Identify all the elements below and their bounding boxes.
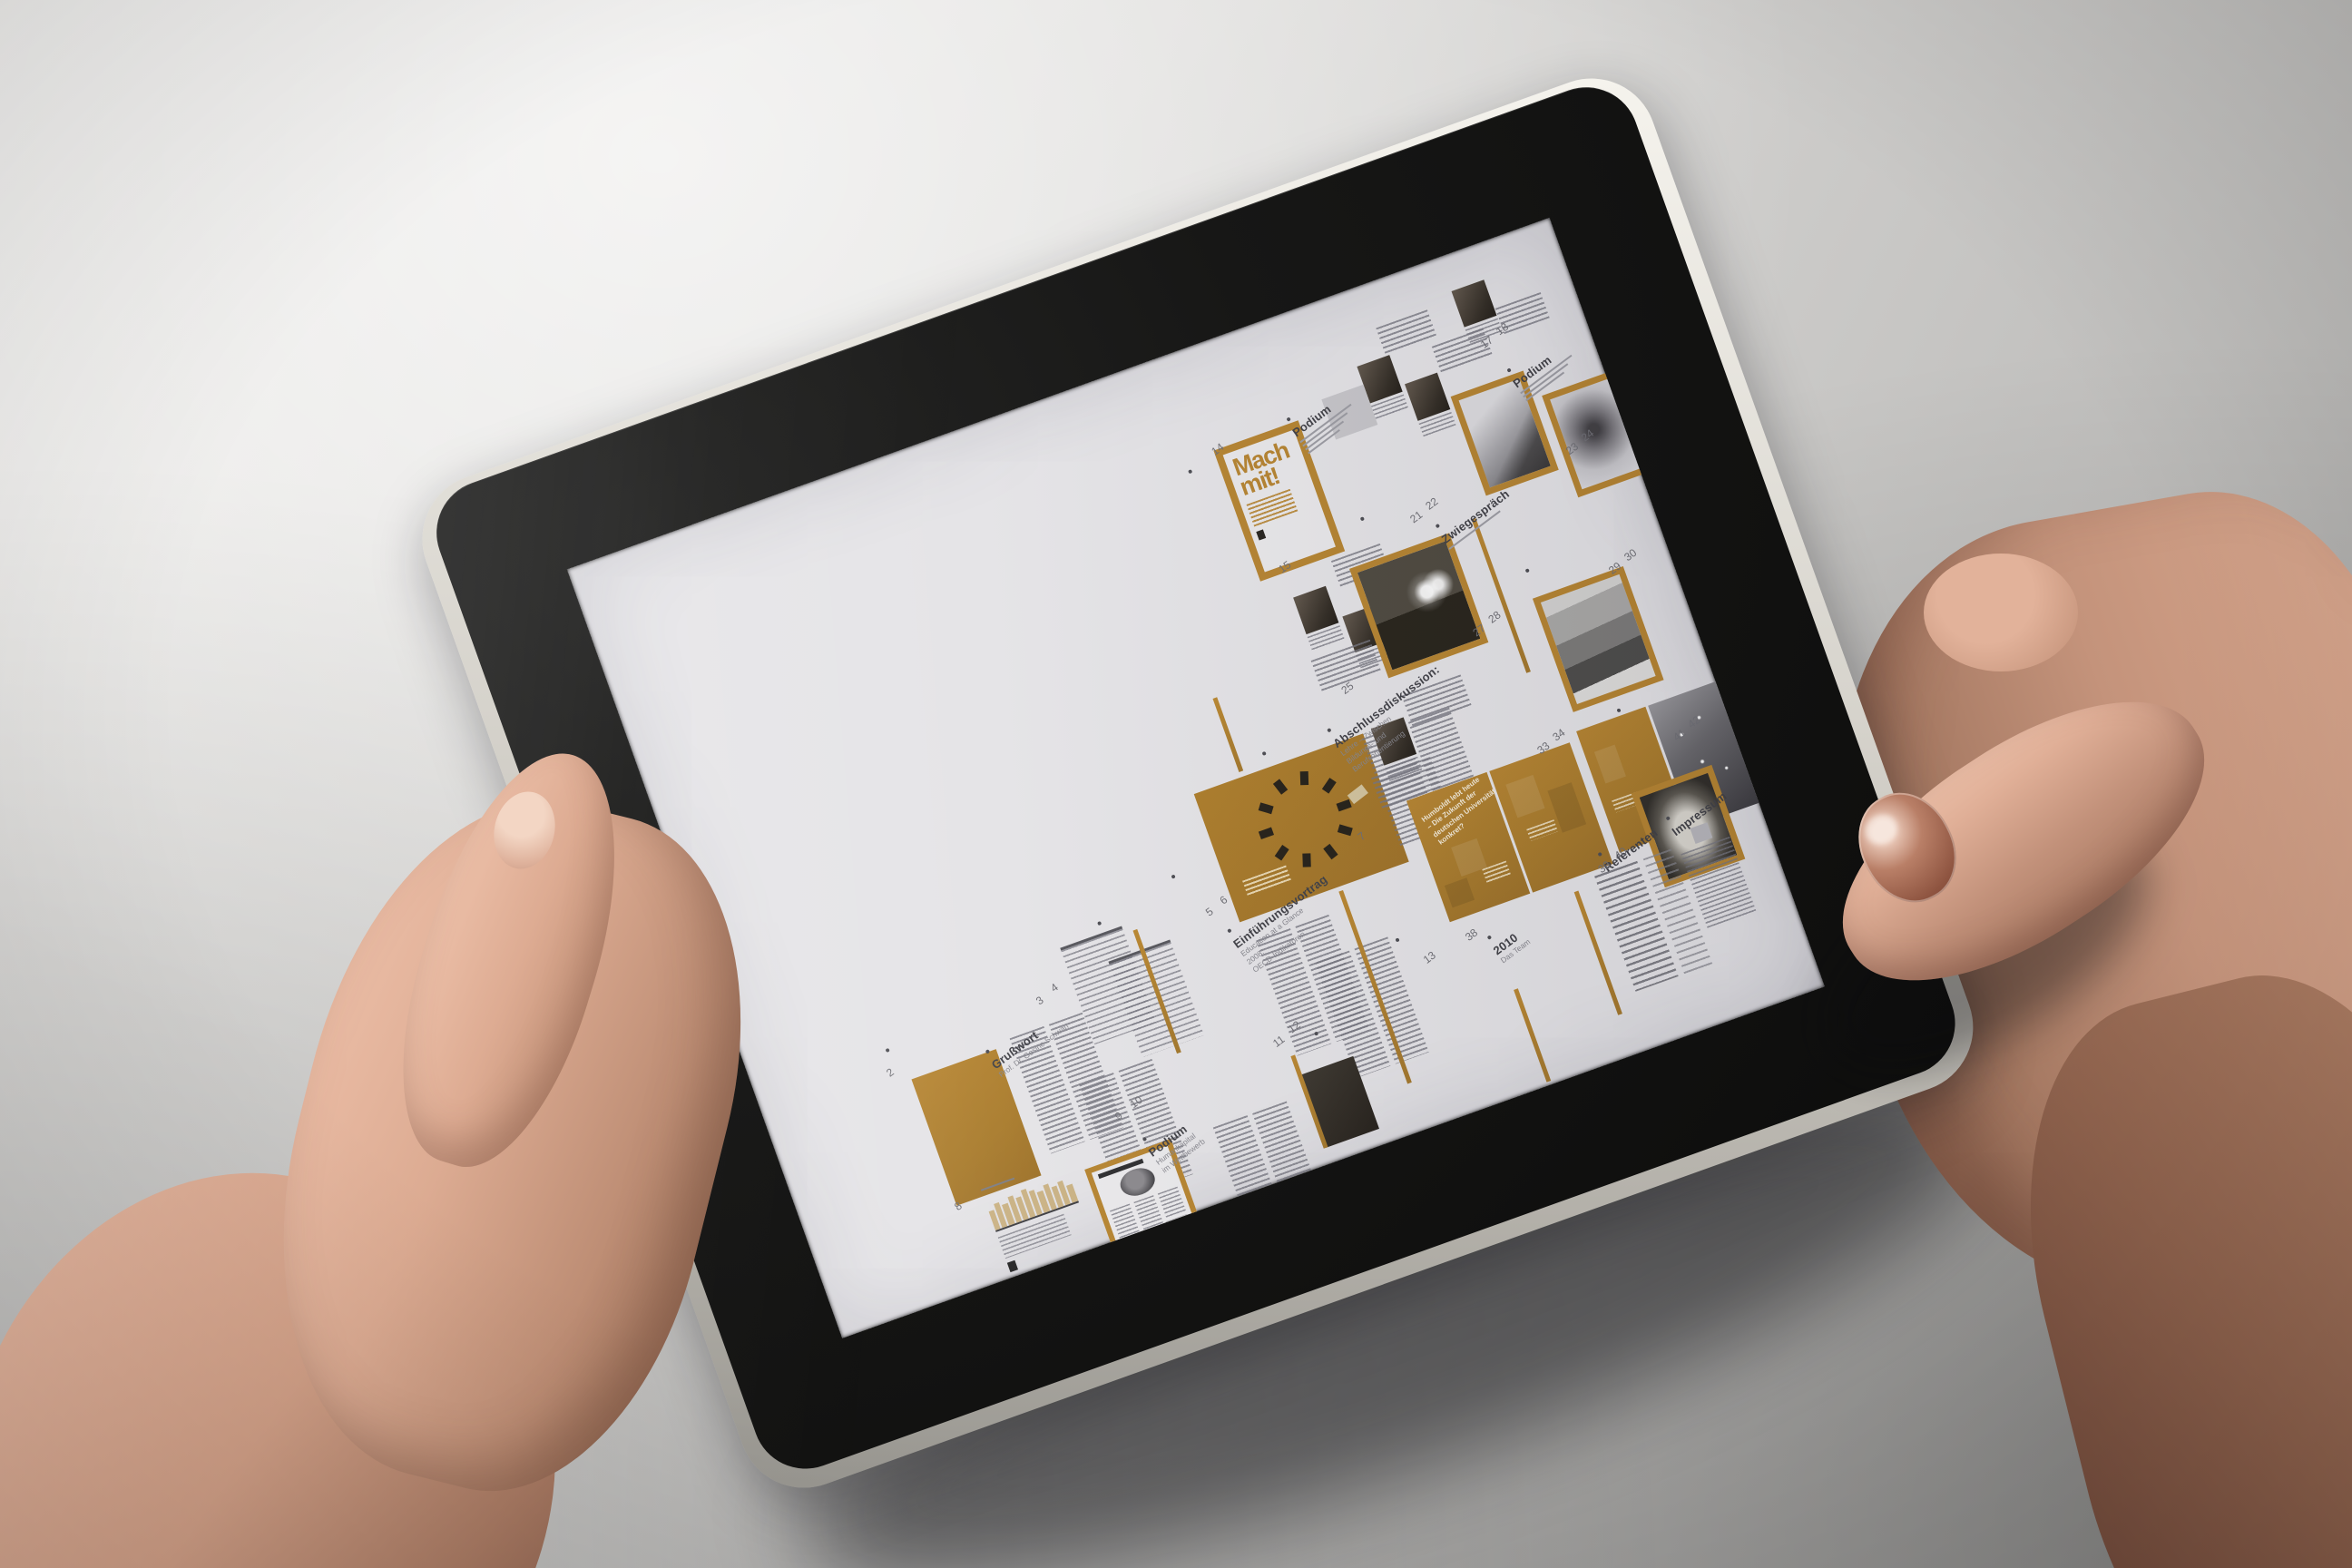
- ochre-rule-4: [1471, 518, 1530, 673]
- heading-team: 2010Das Team: [1491, 926, 1533, 965]
- page-number-6: 6: [1218, 893, 1230, 906]
- auditorium-photo-page: [1533, 566, 1664, 712]
- right-hand-knuckle: [1924, 554, 2078, 671]
- page-number-4: 4: [1048, 980, 1061, 994]
- desk-photo-page: [1451, 371, 1559, 495]
- asterisk-dot-4: [1262, 751, 1267, 756]
- caption-lines-15a: [1377, 310, 1437, 357]
- podium-text-bottom: [1213, 1102, 1313, 1204]
- portrait-15b: [1405, 372, 1457, 439]
- toc-page-2: [1109, 939, 1204, 1057]
- page-number-21: 21: [1407, 508, 1425, 525]
- newspaper-page: [1084, 1138, 1212, 1284]
- page-number-34: 34: [1551, 726, 1568, 743]
- asterisk-dot-8: [1396, 937, 1400, 942]
- heading-podium-right: Podium: [1511, 341, 1572, 392]
- portrait-21a: [1293, 586, 1346, 653]
- page-number-13: 13: [1421, 948, 1438, 965]
- asterisk-dot-5: [885, 1048, 889, 1053]
- ochre-rule-6: [1514, 989, 1551, 1083]
- einfuehrung-text-2: [1315, 936, 1429, 1078]
- asterisk-dot-6: [1360, 517, 1365, 522]
- asterisk-dot-9: [1617, 708, 1622, 712]
- page-number-2: 2: [884, 1066, 897, 1080]
- asterisk-dot-7: [1524, 569, 1529, 573]
- page-number-28: 28: [1486, 608, 1504, 625]
- page-number-5: 5: [1203, 905, 1216, 918]
- screen[interactable]: Machmit!Humboldt lebt heute– Die Zukunft…: [567, 218, 1825, 1338]
- page-number-38: 38: [1463, 926, 1480, 944]
- page-number-11: 11: [1270, 1033, 1287, 1050]
- asterisk-dot-3: [1171, 874, 1175, 878]
- page-number-30: 30: [1622, 546, 1639, 563]
- heading-zwiegespraech: Zwiegespräch: [1439, 487, 1514, 549]
- asterisk-dot-1: [1188, 469, 1192, 474]
- machmit-page: Machmit!: [1214, 420, 1346, 581]
- ochre-rule-2: [1213, 698, 1244, 772]
- asterisk-dot-2: [1097, 922, 1102, 926]
- page-number-22: 22: [1424, 495, 1441, 512]
- page-number-3: 3: [1033, 994, 1045, 1007]
- photo-scene: Machmit!Humboldt lebt heute– Die Zukunft…: [0, 0, 2352, 1568]
- xray-photo-page: [1542, 370, 1649, 497]
